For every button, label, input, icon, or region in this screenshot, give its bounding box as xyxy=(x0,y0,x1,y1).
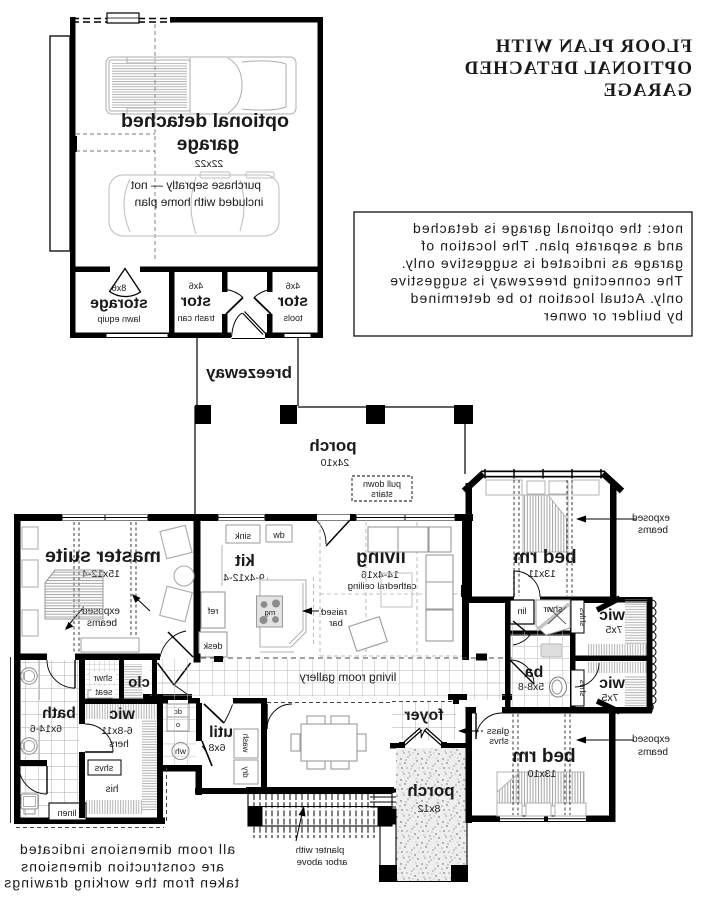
svg-text:all room dimensions indicated: all room dimensions indicated xyxy=(19,841,235,857)
svg-text:exposed: exposed xyxy=(632,513,670,524)
svg-text:7x5: 7x5 xyxy=(605,624,622,636)
svg-text:GARAGE: GARAGE xyxy=(603,80,692,101)
svg-text:shlvs: shlvs xyxy=(578,608,587,626)
svg-text:and a separate plan. The loca: and a separate plan. The location of xyxy=(420,238,683,254)
svg-text:garage as indicated is suggest: garage as indicated is suggestive only. xyxy=(401,255,683,271)
svg-text:master suite: master suite xyxy=(45,546,161,567)
svg-text:hers: hers xyxy=(109,739,128,750)
svg-text:4x6: 4x6 xyxy=(189,281,204,291)
svg-text:wic: wic xyxy=(599,607,626,624)
svg-text:included with home plan: included with home plan xyxy=(135,195,264,209)
svg-text:13x11: 13x11 xyxy=(528,568,556,580)
svg-text:lawn equip: lawn equip xyxy=(97,314,140,324)
svg-text:FLOOR PLAN WITH: FLOOR PLAN WITH xyxy=(495,36,692,57)
svg-text:raised: raised xyxy=(321,607,347,618)
svg-text:shwr: shwr xyxy=(543,604,562,614)
svg-text:6x8: 6x8 xyxy=(208,742,225,754)
svg-text:bath: bath xyxy=(42,705,76,722)
svg-text:The connecting breezeway is su: The connecting breezeway is suggestive xyxy=(389,273,683,289)
svg-text:6-8x11: 6-8x11 xyxy=(101,725,132,737)
svg-text:bed rm: bed rm xyxy=(513,547,576,568)
svg-text:breezeway: breezeway xyxy=(205,363,292,382)
svg-text:shvs: shvs xyxy=(489,736,509,747)
svg-text:wash: wash xyxy=(241,734,250,754)
svg-text:porch: porch xyxy=(309,436,356,455)
svg-text:8x6: 8x6 xyxy=(112,283,127,293)
svg-text:bed rm: bed rm xyxy=(512,746,575,767)
svg-text:pull down: pull down xyxy=(363,479,401,489)
svg-text:by builder or owner: by builder or owner xyxy=(543,308,683,324)
svg-text:ref: ref xyxy=(207,606,218,616)
svg-text:shwr: shwr xyxy=(93,673,112,683)
svg-text:stor: stor xyxy=(278,293,308,310)
svg-text:6x14-6: 6x14-6 xyxy=(30,723,62,735)
svg-text:9-4x12-4: 9-4x12-4 xyxy=(223,572,265,584)
svg-text:wic: wic xyxy=(109,706,136,723)
svg-text:taken from the working drawing: taken from the working drawings xyxy=(3,875,239,891)
svg-text:clo: clo xyxy=(128,674,150,691)
svg-text:4x6: 4x6 xyxy=(286,281,301,291)
svg-text:are construction dimensions: are construction dimensions xyxy=(20,859,224,875)
svg-text:sink: sink xyxy=(235,531,252,541)
svg-text:stor: stor xyxy=(181,293,211,310)
svg-text:dry: dry xyxy=(241,766,250,777)
svg-text:beams: beams xyxy=(638,747,668,758)
svg-text:8x12: 8x12 xyxy=(417,803,440,815)
svg-text:wic: wic xyxy=(599,675,626,692)
svg-text:optional detached: optional detached xyxy=(121,111,289,132)
svg-text:exposed: exposed xyxy=(632,734,670,745)
svg-text:desk: desk xyxy=(203,641,223,651)
svg-text:22x22: 22x22 xyxy=(195,158,224,170)
svg-text:util: util xyxy=(209,724,233,741)
svg-text:shvs: shvs xyxy=(578,680,587,696)
svg-text:living room gallery: living room gallery xyxy=(300,670,397,684)
svg-text:kit: kit xyxy=(235,551,255,570)
svg-text:OPTIONAL DETACHED: OPTIONAL DETACHED xyxy=(464,58,692,79)
svg-text:planter with: planter with xyxy=(296,845,345,856)
svg-text:garage: garage xyxy=(177,134,239,155)
svg-text:seat: seat xyxy=(95,687,113,697)
svg-text:lin: lin xyxy=(517,606,526,616)
svg-text:trash can: trash can xyxy=(177,313,214,323)
svg-text:cathedral ceiling: cathedral ceiling xyxy=(348,581,417,592)
svg-text:note: the optional garage is d: note: the optional garage is detached xyxy=(412,220,683,236)
svg-text:tools: tools xyxy=(283,313,303,323)
svg-text:ba: ba xyxy=(525,664,544,681)
svg-text:foyer: foyer xyxy=(404,707,443,724)
svg-text:rng: rng xyxy=(265,608,276,617)
svg-text:stairs: stairs xyxy=(371,489,393,499)
svg-text:24x10: 24x10 xyxy=(321,457,350,469)
svg-text:purchase sepratly — not: purchase sepratly — not xyxy=(130,178,261,192)
svg-text:his: his xyxy=(106,784,119,795)
svg-text:porch: porch xyxy=(407,781,454,800)
svg-text:beams: beams xyxy=(87,618,117,629)
svg-text:shvs: shvs xyxy=(94,763,113,773)
svg-text:bar: bar xyxy=(329,618,343,629)
svg-text:storage: storage xyxy=(90,295,148,312)
svg-text:beams: beams xyxy=(638,525,668,536)
svg-text:7x5: 7x5 xyxy=(601,692,618,704)
svg-text:dw: dw xyxy=(273,530,285,540)
svg-text:13x10: 13x10 xyxy=(528,768,557,780)
svg-text:14-4x16: 14-4x16 xyxy=(361,569,399,581)
svg-text:5x8-8: 5x8-8 xyxy=(518,681,544,693)
svg-text:linen: linen xyxy=(57,808,76,818)
svg-text:arbor above: arbor above xyxy=(297,857,348,868)
svg-text:only. Actual location to be d: only. Actual location to be determined xyxy=(410,290,683,306)
